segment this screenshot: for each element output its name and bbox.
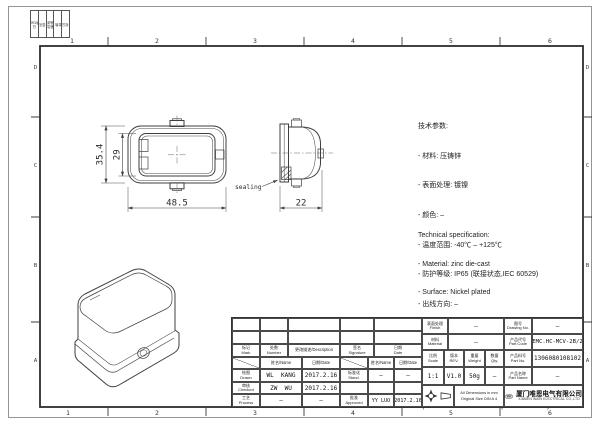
zone-number: 2 [155, 37, 159, 45]
corner-guide-detail [88, 292, 100, 300]
approved-label: 批准 Approved [340, 394, 368, 407]
zone-letter: D [586, 65, 589, 71]
name-header: 姓名/Name [368, 357, 394, 369]
title-block: 标记 Mark 处数 Number 更改描述/Description 签名 Si… [232, 318, 583, 407]
spec-line: - 材料: 压铸锌 [418, 152, 538, 162]
dim-depth: 22 [296, 199, 307, 209]
empty-cell [340, 382, 368, 394]
zone-letter: B [34, 263, 38, 269]
diagonal-cell [232, 357, 260, 369]
guide-rail [139, 140, 148, 152]
zone-number: 3 [253, 409, 257, 417]
zone-number: 1 [70, 37, 74, 45]
spec-en-title: Technical specification: [418, 231, 550, 241]
drawing-no-label: 图号 Drawing No. [504, 318, 532, 334]
zone-number: 4 [351, 409, 355, 417]
revision-cell-empty [260, 331, 288, 344]
weight-label: 重量 Weight [464, 350, 485, 367]
drawn-date: 2017.2.16 [302, 369, 340, 382]
zone-letter: C [586, 163, 589, 169]
dim-inner-height: 29 [113, 149, 123, 160]
standardized-name: – [368, 369, 394, 382]
drawing-no-value: – [532, 318, 583, 334]
finish-label: 表面处理 Finish [422, 318, 448, 334]
drawn-name: WL KANG [260, 369, 302, 382]
revision-cell-empty [374, 331, 422, 344]
rev-label: 版本 REV. [444, 350, 464, 367]
revision-cell-empty [374, 318, 422, 331]
part-code-value: EMC.HC-MCV-2B/2 [532, 334, 583, 350]
material-label: 材料 Material [422, 334, 448, 350]
zone-letter: A [586, 358, 590, 364]
zone-number: 6 [548, 37, 552, 45]
wain-logo: WAIN [505, 390, 513, 403]
projection-symbol [422, 385, 454, 407]
spec-cn-title: 技术参数: [418, 122, 538, 132]
revision-strip-cell: 更改描述 [47, 11, 55, 37]
date-header: 日期/Date [394, 357, 422, 369]
revision-strip-cell: 标记 [62, 11, 69, 37]
qty-label: 数量 Qty. [485, 350, 504, 367]
revision-cell-empty [288, 318, 340, 331]
revision-cell-empty [232, 331, 260, 344]
view-side: sealing 22 [235, 118, 333, 212]
revision-cell-empty [288, 331, 340, 344]
sealing-leader [262, 180, 278, 186]
company-name-en: XIAMEN WAIN ELECTRICAL CO.,LTD [516, 398, 582, 402]
zone-letter: C [34, 163, 37, 169]
approved-name: YY LUO [368, 394, 394, 407]
revision-cell-empty [340, 318, 374, 331]
company-cell: WAIN 厦门唯恩电气有限公司 XIAMEN WAIN ELECTRICAL C… [504, 385, 583, 407]
checked-date: 2017.2.16 [302, 382, 340, 394]
zone-number: 1 [66, 409, 70, 417]
dimensions-note: All Dimensions in mm Original Size DIN A… [454, 385, 504, 407]
qty-value: – [485, 367, 504, 385]
standardized-label: 标准化 Stand. [340, 369, 368, 382]
zone-letter: D [34, 65, 37, 71]
zone-number: 5 [449, 37, 453, 45]
process-date: – [302, 394, 340, 407]
drawing-sheet: 1 2 3 4 5 6 1 2 3 4 5 6 D C B A D C B A [0, 0, 600, 424]
view-isometric [75, 269, 179, 387]
number-header: 处数 Number [260, 344, 288, 357]
side-latch-notch [216, 150, 225, 159]
zone-letter: A [34, 358, 38, 364]
diagonal-cell [340, 357, 368, 369]
dim-width: 48.5 [166, 199, 188, 209]
revision-cell-empty [232, 318, 260, 331]
date-header: 日期 Date [374, 344, 422, 357]
empty-cell [394, 382, 422, 394]
dimensions-top-view: 35.4 29 48.5 [96, 126, 227, 212]
zone-number: 3 [253, 37, 257, 45]
spec-line: - Material: zinc die-cast [418, 260, 550, 270]
sealing-label: sealing [235, 184, 262, 191]
first-angle-projection-icon [424, 389, 452, 403]
checked-label: 审核 Checked [232, 382, 260, 394]
dim-outer-height: 35.4 [96, 144, 106, 166]
guide-rail [139, 157, 148, 169]
zone-number: 2 [155, 409, 159, 417]
revision-strip-cell: 处数 [54, 11, 62, 37]
scale-value: 1:1 [422, 367, 444, 385]
company-names: 厦门唯恩电气有限公司 XIAMEN WAIN ELECTRICAL CO.,LT… [516, 391, 582, 402]
revision-cell-empty [340, 331, 374, 344]
hood-top-face [80, 273, 172, 333]
spec-line: - 表面处理: 镀镍 [418, 181, 538, 191]
zone-letter: B [586, 263, 590, 269]
part-no-value: 1306080108102 [532, 350, 583, 367]
revision-strip: 日期/Date 签名 更改描述 处数 标记 [30, 10, 70, 38]
spec-line: - Surface: Nickel plated [418, 288, 550, 298]
mark-header: 标记 Mark [232, 344, 260, 357]
latch-pin-top [292, 120, 302, 127]
part-no-label: 产品料号 Part No. [504, 350, 532, 367]
description-header: 更改描述/Description [288, 344, 340, 357]
latch-pin-bottom [292, 179, 302, 186]
revision-strip-cell: 签名 [39, 11, 47, 37]
approved-date: 2017.2.16 [394, 394, 422, 407]
part-name-value: – [532, 367, 583, 385]
finish-value: – [448, 318, 504, 334]
process-label: 工艺 Process [232, 394, 260, 407]
weight-value: 50g [464, 367, 485, 385]
part-name-label: 产品名称 Part Name [504, 367, 532, 385]
zone-number: 4 [351, 37, 355, 45]
process-name: – [260, 394, 302, 407]
revision-strip-cell: 日期/Date [31, 11, 39, 37]
name-header: 姓名/Name [260, 357, 302, 369]
view-top [128, 116, 226, 195]
material-value: – [448, 334, 504, 350]
rev-value: V1.0 [444, 367, 464, 385]
scale-label: 比例 Scale [422, 350, 444, 367]
drawn-label: 绘图 Drawn [232, 369, 260, 382]
standardized-date: – [394, 369, 422, 382]
revision-cell-empty [260, 318, 288, 331]
seal [282, 167, 292, 180]
part-code-label: 产品代号 Part Code [504, 334, 532, 350]
empty-cell [368, 382, 394, 394]
checked-name: ZW WU [260, 382, 302, 394]
signature-header: 签名 Signature [340, 344, 374, 357]
date-header: 日期/Date [302, 357, 340, 369]
wain-logo-text: WAIN [507, 395, 512, 398]
